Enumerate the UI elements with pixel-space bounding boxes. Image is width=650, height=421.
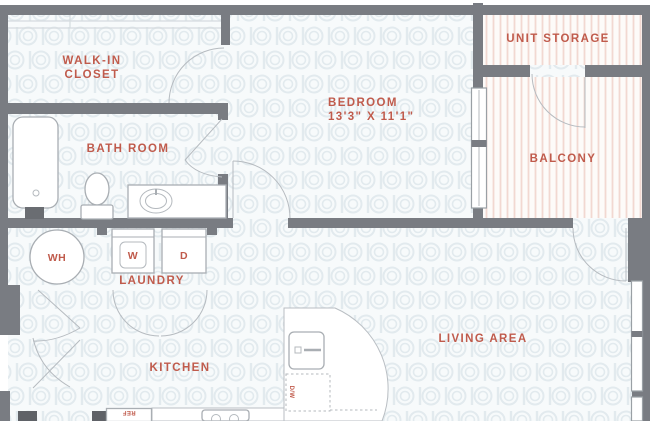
fixture-label-refrigerator: REF <box>122 409 135 415</box>
fixture-label-dishwasher: D/W <box>288 386 294 399</box>
bedroom-balcony-window <box>472 88 487 208</box>
room-label-balcony: BALCONY <box>530 153 597 165</box>
room-label-laundry: LAUNDRY <box>119 275 185 287</box>
balcony-floor <box>483 77 642 218</box>
floor-plan-canvas: WALK-IN CLOSET BATH ROOM BEDROOM 13'3" X… <box>0 0 650 421</box>
living-area-window <box>632 281 643 421</box>
room-label-living-area: LIVING AREA <box>438 333 527 345</box>
room-label-bedroom: BEDROOM <box>328 97 398 109</box>
fixture-label-dryer: D <box>180 250 188 262</box>
room-label-walk-in-closet-line1: WALK-IN <box>63 55 122 67</box>
room-label-walk-in-closet-line2: CLOSET <box>64 69 119 81</box>
bathtub-faucet <box>25 207 44 219</box>
fixture-label-water-heater: WH <box>48 252 67 264</box>
bathtub <box>13 117 58 219</box>
fixture-label-washer: W <box>128 250 138 262</box>
room-label-unit-storage: UNIT STORAGE <box>506 33 609 45</box>
room-dimensions-bedroom: 13'3" X 11'1" <box>328 111 414 123</box>
room-label-kitchen: KITCHEN <box>150 362 211 374</box>
stove-range <box>202 410 249 421</box>
floor-plan: WALK-IN CLOSET BATH ROOM BEDROOM 13'3" X… <box>0 0 650 421</box>
kitchen-sink <box>289 332 324 369</box>
room-label-bath-room: BATH ROOM <box>87 143 170 155</box>
bathroom-vanity-sink <box>128 185 226 218</box>
